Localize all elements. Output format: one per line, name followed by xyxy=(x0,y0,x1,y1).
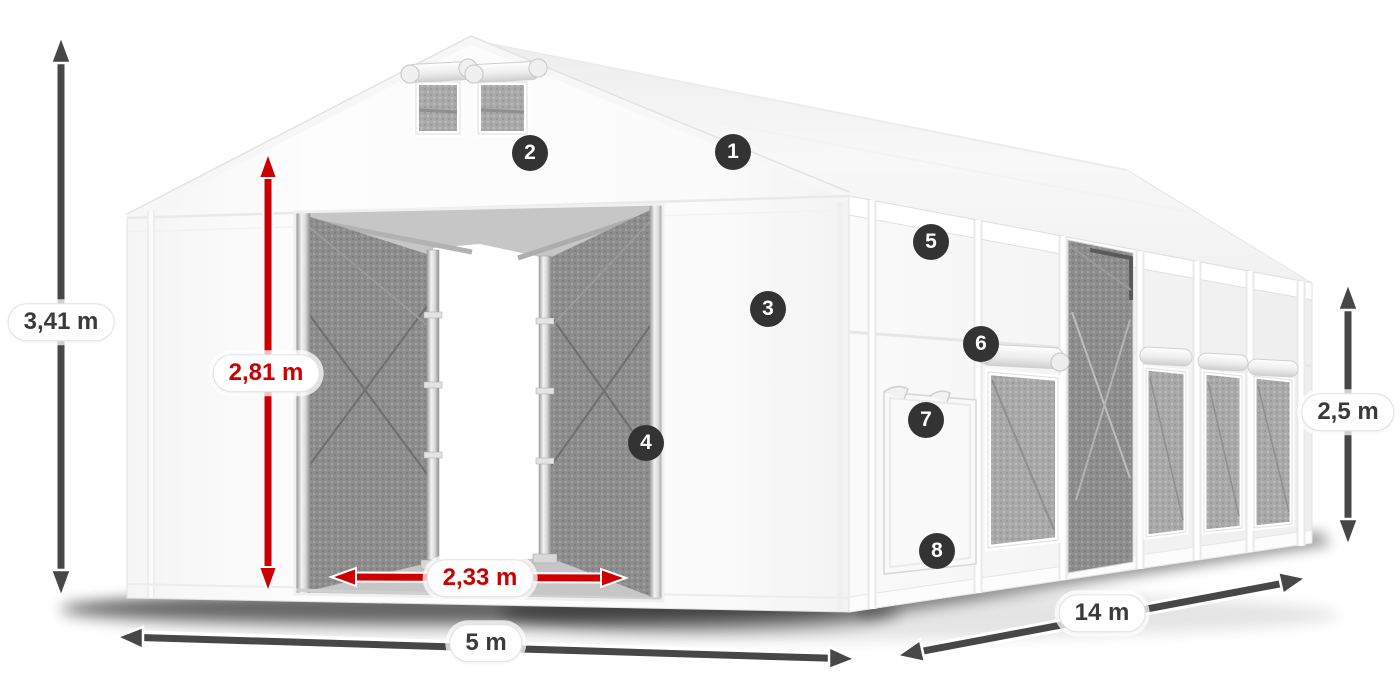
product-diagram: 3,41 m 2,81 m 2,33 m 5 m 14 m 2,5 m 1 2 … xyxy=(0,0,1400,700)
dimension-side-length: 14 m xyxy=(1059,594,1146,632)
dimension-total-height: 3,41 m xyxy=(8,303,115,341)
feature-marker-7[interactable]: 7 xyxy=(908,402,944,438)
side-windows xyxy=(1140,347,1299,537)
tent-illustration xyxy=(0,0,1400,700)
feature-marker-1[interactable]: 1 xyxy=(715,134,751,170)
dimension-front-width: 5 m xyxy=(449,624,522,662)
feature-marker-6[interactable]: 6 xyxy=(963,326,999,362)
dimension-entrance-width: 2,33 m xyxy=(427,559,534,597)
feature-marker-8[interactable]: 8 xyxy=(919,533,955,569)
feature-marker-5[interactable]: 5 xyxy=(913,224,949,260)
side-open-doorway xyxy=(1068,240,1133,573)
entrance-interior xyxy=(290,198,670,608)
feature-marker-4[interactable]: 4 xyxy=(628,425,664,461)
feature-marker-3[interactable]: 3 xyxy=(750,291,786,327)
feature-marker-2[interactable]: 2 xyxy=(512,135,548,171)
dimension-entrance-height: 2,81 m xyxy=(213,354,320,392)
dimension-side-height: 2,5 m xyxy=(1301,393,1394,431)
